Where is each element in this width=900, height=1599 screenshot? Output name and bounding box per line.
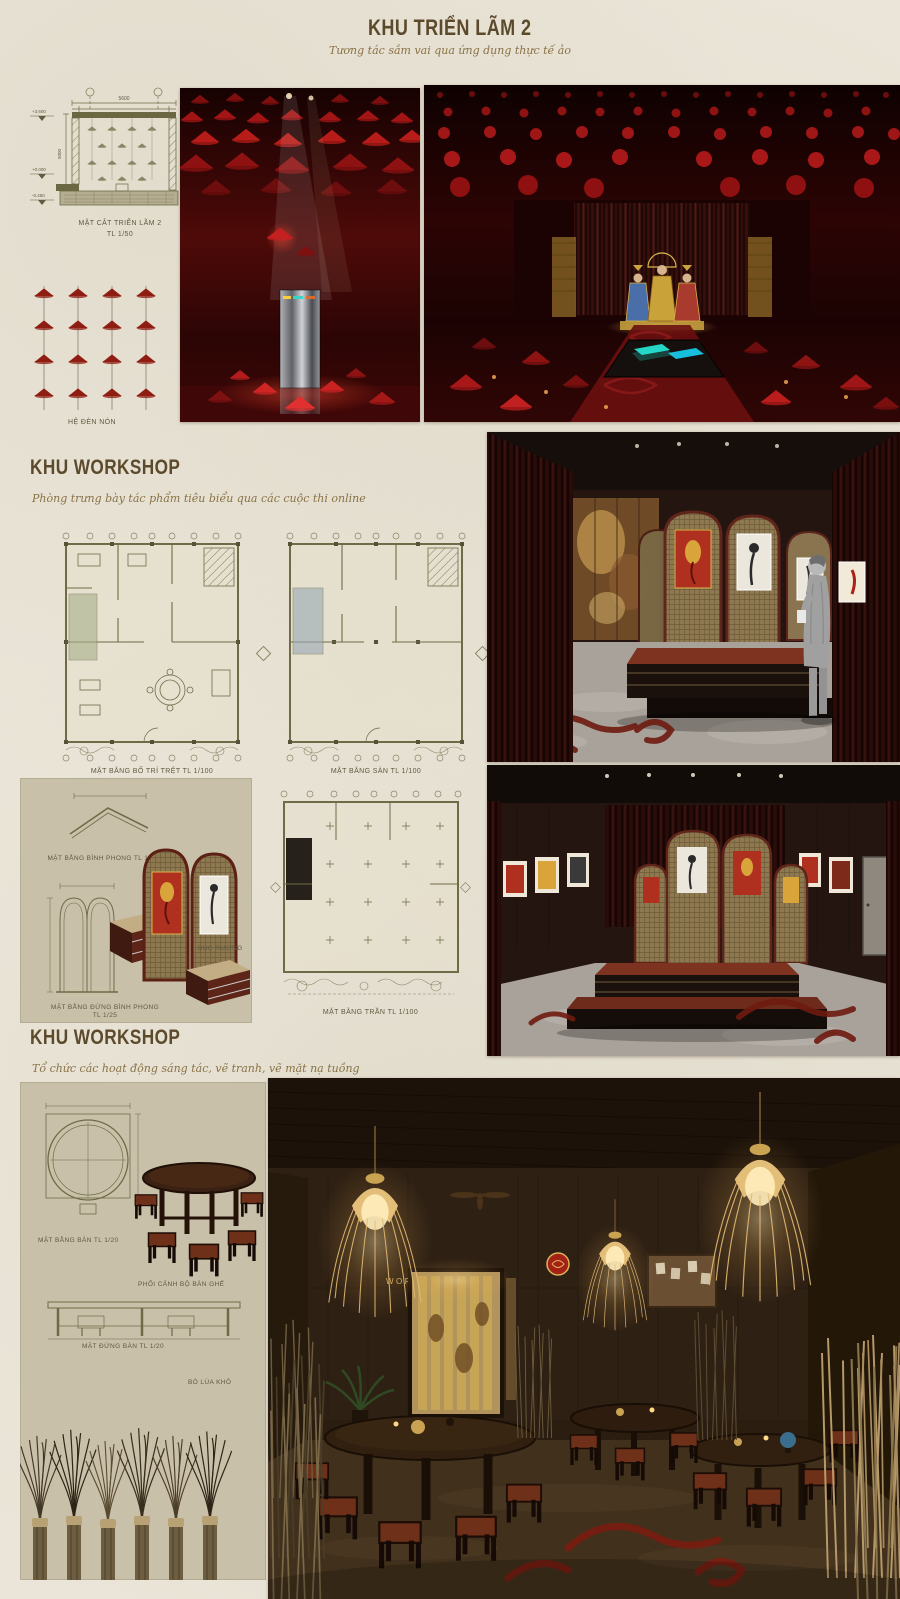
garden-edge — [284, 979, 454, 994]
screen-elevation-label: MẶT BẰNG ĐỨNG BÌNH PHONG TL 1/25 — [20, 1004, 190, 1020]
wall-emblem — [547, 1253, 569, 1275]
svg-text:+0.000: +0.000 — [32, 167, 46, 172]
axis-diamond-marker — [256, 646, 272, 662]
section-drawing-label: MẶT CẮT TRIỂN LÃM 2 TL 1/50 — [50, 219, 190, 240]
right-poster — [839, 562, 865, 602]
stair — [428, 548, 458, 586]
podium-section — [116, 184, 128, 191]
exhibition-render-2 — [424, 85, 900, 422]
workshop-detail-panel: MẶT BẰNG BÀN TL 1/20 PHỐI CẢNH BỘ BÀN GH… — [20, 1082, 266, 1580]
axis-diamond — [461, 883, 471, 893]
lamp-system-image — [22, 282, 162, 414]
exhibition-render-1 — [180, 88, 420, 422]
ceiling-plan — [268, 788, 473, 1006]
gold-slats-left — [552, 237, 576, 317]
page-title-text: KHU TRIỂN LÃM 2 — [368, 15, 532, 41]
lamp-wires — [44, 286, 146, 410]
screen-isometric-image — [108, 830, 252, 1005]
round-table — [143, 1163, 255, 1234]
garden-edge — [66, 747, 238, 755]
left-wall — [72, 118, 79, 184]
conical-hat-lamp-icons — [35, 288, 156, 398]
folding-screen — [144, 850, 236, 980]
right-wall — [169, 118, 176, 190]
bundle-ties-and-stems — [32, 1516, 218, 1580]
top-beam — [72, 112, 176, 118]
presentation-board: KHU TRIỂN LÃM 2 Tương tác sắm vai qua ứn… — [0, 0, 900, 1599]
level-markers: +3.600 +0.000 -0.450 — [30, 109, 54, 205]
grass-bundles — [20, 1428, 232, 1523]
floor-plan-ground — [52, 530, 252, 766]
gold-slats-right — [748, 237, 772, 317]
dim-top: 5600 — [118, 96, 129, 102]
ceiling — [487, 765, 900, 803]
axis-diamond — [271, 883, 281, 893]
gallery-render-1 — [487, 432, 900, 762]
stools — [135, 1193, 263, 1277]
grid-bubbles-bottom — [287, 755, 465, 761]
gallery-render-2 — [487, 765, 900, 1056]
table-elevation-drawing — [42, 1296, 252, 1342]
podium-label: BỤC RƯƠNG — [198, 944, 252, 954]
activity-section-subtitle: Tổ chức các hoạt động sáng tác, vẽ tranh… — [32, 1062, 360, 1075]
table-perspective-label: PHỐI CẢNH BỘ BÀN GHẾ — [138, 1280, 258, 1290]
section-drawing: 5600 4000 5000 +3.600 — [28, 84, 180, 218]
lamp-system-diagram — [22, 282, 162, 414]
foundation — [60, 191, 178, 205]
hanging-wires — [92, 118, 152, 180]
grid-bubbles-top — [63, 533, 241, 539]
activity-section-title: KHU WORKSHOP — [30, 1026, 213, 1050]
mirror-kiosk — [280, 290, 320, 414]
plan-upper-label: MẶT BẰNG SÀN TL 1/100 — [276, 767, 476, 778]
floor-plan-upper — [276, 530, 476, 766]
svg-text:+3.600: +3.600 — [32, 109, 46, 114]
dark-zone — [286, 838, 312, 900]
screen-detail-panel: MẶT BẰNG BÌNH PHONG TL 1/25 MẶT BẰNG ĐỨN… — [20, 778, 252, 1023]
stair — [204, 548, 234, 586]
grid-bubbles-top — [281, 791, 461, 797]
door-handle — [867, 904, 870, 907]
lamp-diagram-label: HỆ ĐÈN NÓN — [22, 418, 162, 429]
dim-height: 5000 — [57, 148, 62, 159]
bamboo-curtain — [506, 1278, 516, 1400]
garden-edge — [290, 747, 462, 755]
svg-text:-0.450: -0.450 — [32, 193, 45, 198]
left-curtain-edge — [487, 801, 501, 1056]
dry-grass-image — [20, 1370, 240, 1580]
workshop-render: WORKSHOP — [268, 1078, 900, 1599]
table-plan-drawing — [32, 1100, 144, 1234]
section-hats — [88, 126, 157, 181]
green-room — [69, 594, 97, 660]
page-subtitle: Tương tác sắm vai qua ứng dụng thực tế ả… — [0, 44, 900, 57]
page-title: KHU TRIỂN LÃM 2 — [0, 15, 900, 41]
gallery-section-subtitle: Phòng trưng bày tác phẩm tiêu biểu qua c… — [32, 492, 366, 505]
ledge — [56, 184, 79, 191]
table-perspective-image — [132, 1130, 266, 1280]
grid-bubbles-top — [287, 533, 465, 539]
grid-bubbles-bottom — [63, 755, 241, 761]
plan-ground-label: MẶT BẰNG BỐ TRÍ TRỆT TL 1/100 — [52, 767, 252, 778]
section-drawing-image: 5600 4000 5000 +3.600 — [28, 84, 180, 218]
gallery-section-title: KHU WORKSHOP — [30, 456, 213, 480]
ceiling-plan-label: MẶT BẰNG TRẦN TL 1/100 — [268, 1008, 473, 1019]
blue-room — [293, 588, 323, 654]
left-curtain — [487, 432, 573, 762]
table-elevation-label: MẶT ĐỨNG BÀN TL 1/20 — [82, 1342, 202, 1352]
right-curtain-edge — [886, 801, 900, 1056]
